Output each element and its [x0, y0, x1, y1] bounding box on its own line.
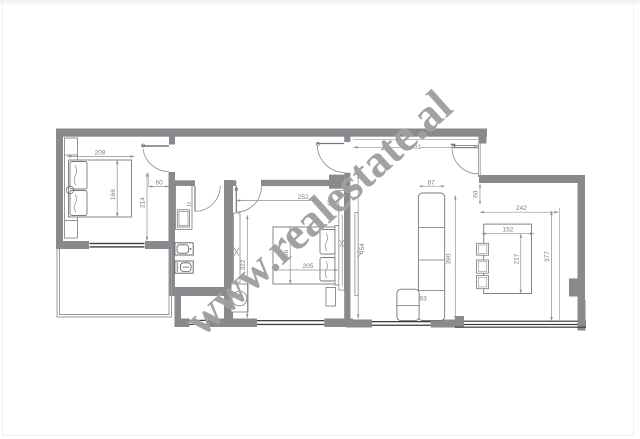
svg-text:390: 390 [445, 253, 452, 264]
svg-text:60: 60 [156, 179, 164, 186]
svg-text:87: 87 [428, 180, 436, 187]
svg-text:242: 242 [516, 205, 527, 212]
svg-text:166: 166 [110, 189, 117, 200]
svg-text:205: 205 [303, 263, 314, 270]
svg-text:208: 208 [95, 149, 106, 156]
svg-text:60: 60 [473, 190, 480, 198]
svg-text:454: 454 [359, 243, 366, 254]
svg-text:377: 377 [544, 251, 551, 262]
svg-text:63: 63 [420, 295, 428, 302]
svg-text:217: 217 [513, 253, 520, 264]
svg-text:214: 214 [140, 197, 147, 208]
svg-text:152: 152 [503, 227, 514, 234]
